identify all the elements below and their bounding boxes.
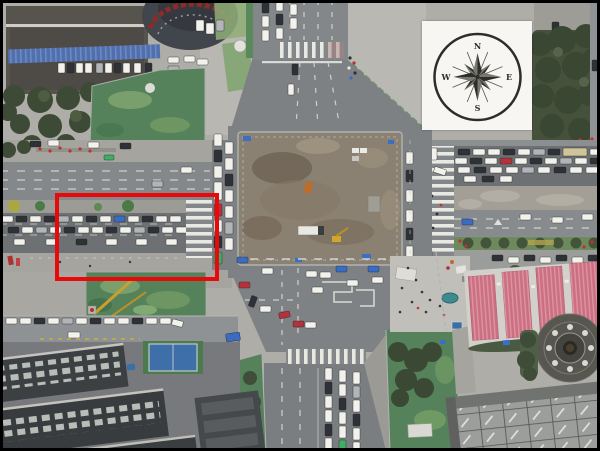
dark-building-sw bbox=[194, 390, 267, 451]
compass-south-label: S bbox=[475, 103, 481, 113]
compass-rose: N E S W bbox=[422, 21, 532, 130]
crosswalk-south bbox=[286, 349, 366, 364]
construction-pit bbox=[238, 132, 402, 265]
excavator bbox=[332, 236, 341, 242]
compass-east-label: E bbox=[506, 72, 512, 82]
circular-structure bbox=[536, 314, 600, 382]
highlight-rectangle bbox=[55, 193, 219, 281]
compass-north-label: N bbox=[474, 41, 481, 51]
compass-icon: N E S W bbox=[422, 21, 532, 130]
sports-court bbox=[143, 341, 203, 374]
aerial-photo: N E S W bbox=[0, 0, 600, 451]
compass-west-label: W bbox=[441, 72, 452, 82]
pond bbox=[442, 293, 458, 303]
